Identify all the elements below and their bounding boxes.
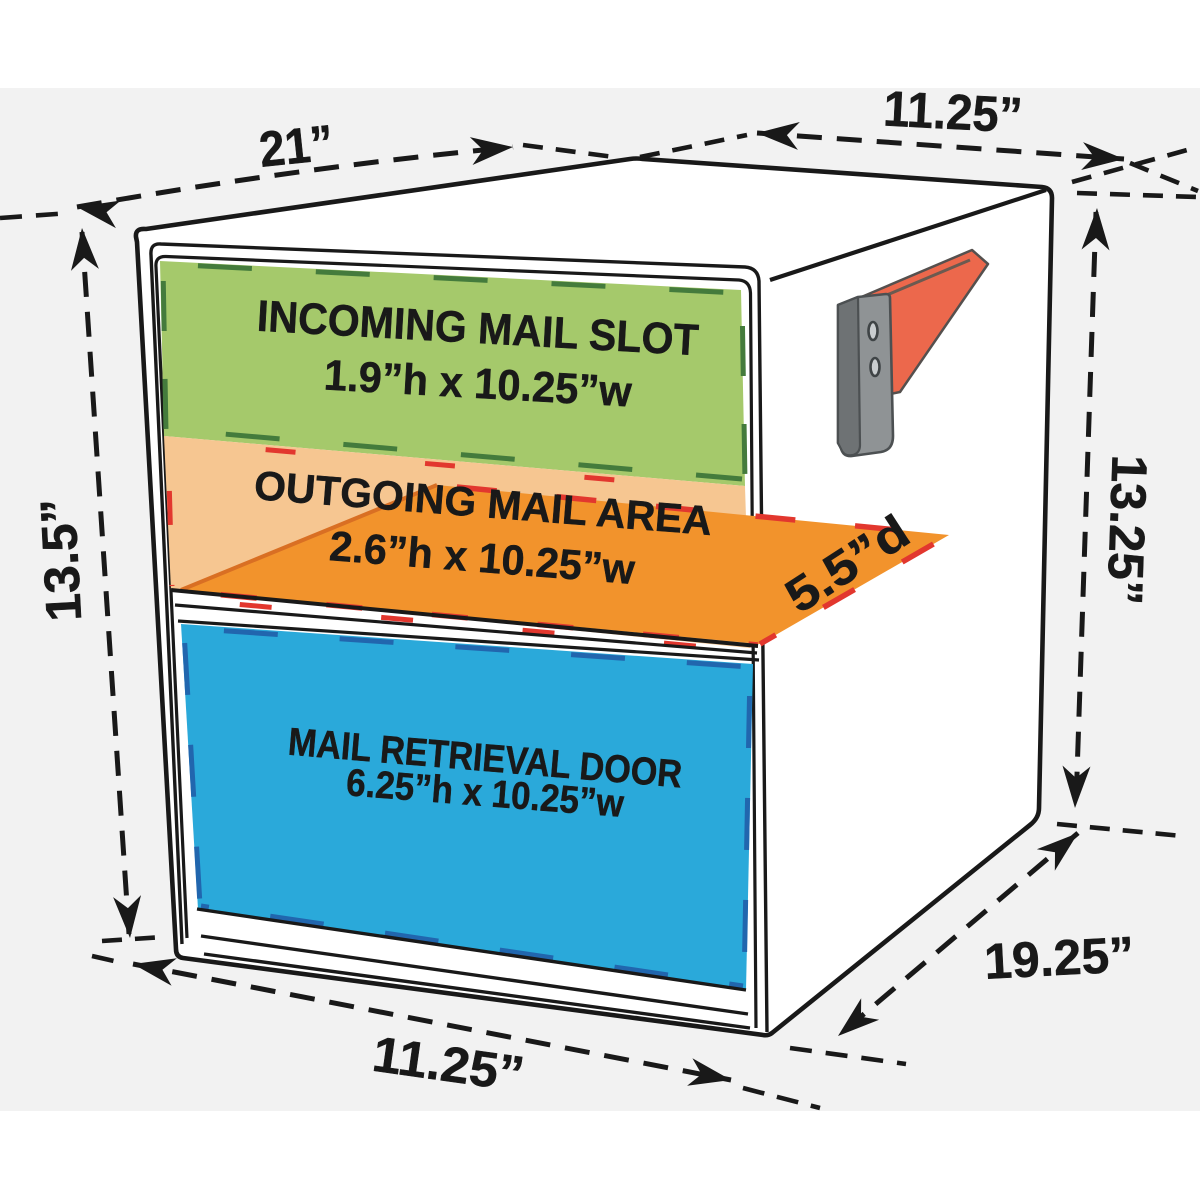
- svg-text:19.25”: 19.25”: [983, 926, 1136, 990]
- svg-text:11.25”: 11.25”: [882, 80, 1024, 143]
- svg-text:13.5”: 13.5”: [30, 497, 92, 623]
- svg-text:21”: 21”: [256, 114, 335, 177]
- svg-text:13.25”: 13.25”: [1096, 454, 1157, 606]
